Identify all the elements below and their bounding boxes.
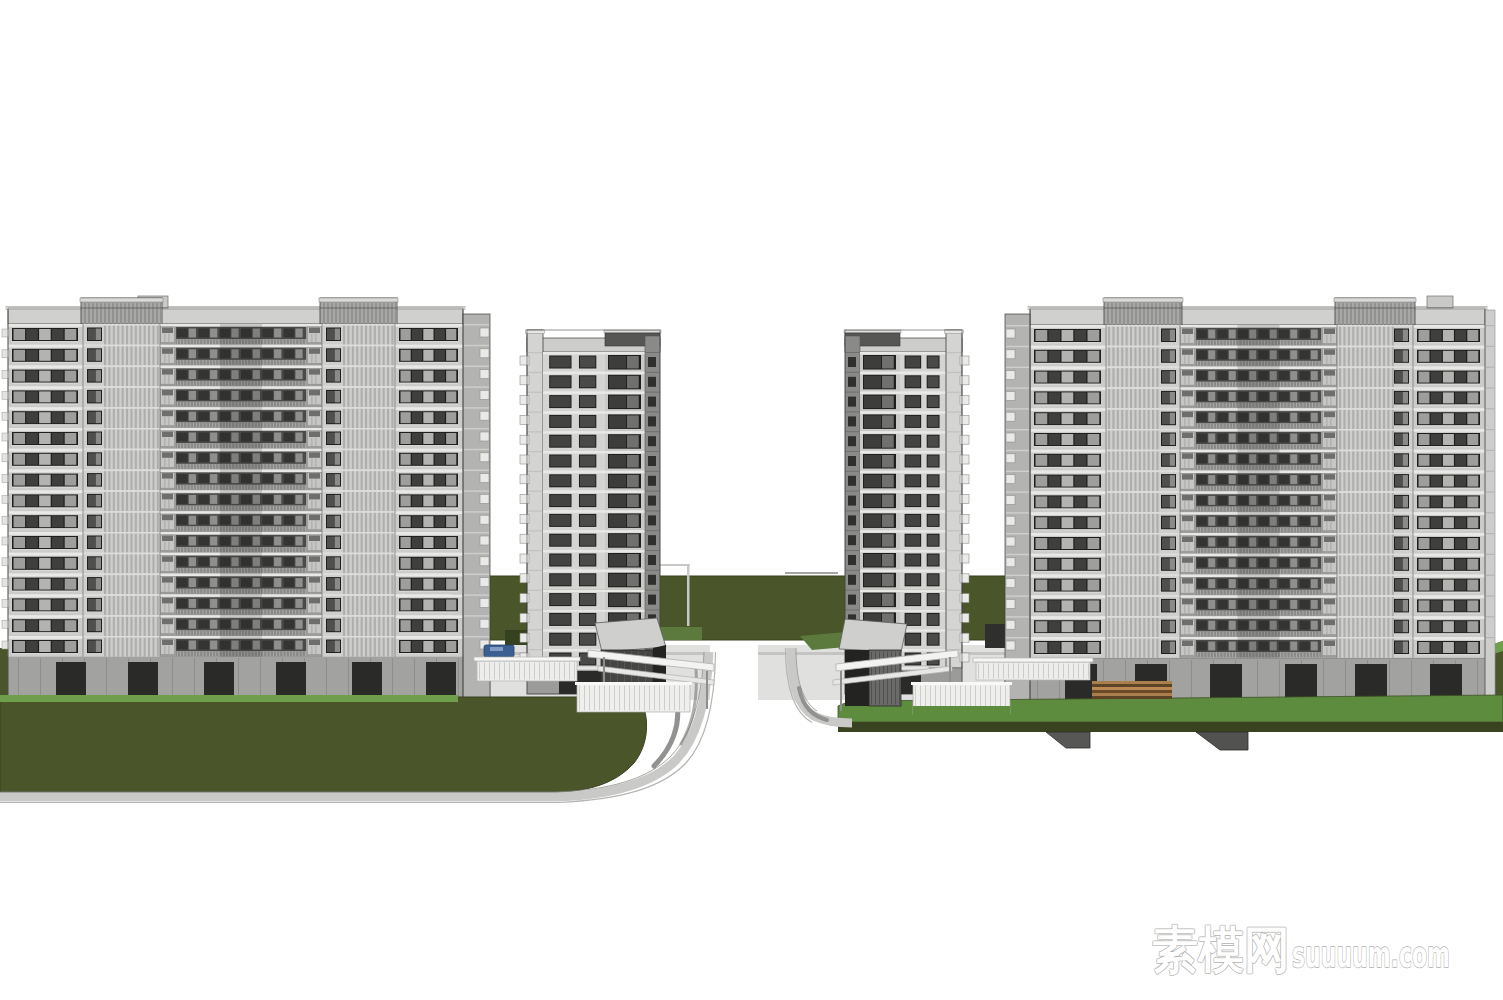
side-balcony-tab	[520, 514, 529, 523]
side-balcony-tab	[520, 613, 529, 622]
deck-stripe-3	[1092, 687, 1172, 690]
side-balcony-tab	[480, 349, 489, 358]
gate-fence-cap	[911, 682, 1012, 685]
side-balcony-tab	[480, 578, 489, 587]
fence-hedge	[913, 706, 1010, 715]
side-balcony-tab	[960, 435, 969, 444]
side-balcony-tab	[1006, 475, 1015, 484]
side-balcony-tab	[960, 356, 969, 365]
roof-box	[1427, 296, 1453, 308]
side-balcony-tab	[1006, 579, 1015, 588]
side-balcony-tab	[520, 594, 529, 603]
side-balcony-tab	[960, 475, 969, 484]
side-balcony-tab	[480, 390, 489, 399]
side-balcony-tab	[1006, 454, 1015, 463]
gate-fence-cap	[575, 682, 692, 685]
watermark-zh: 素模网	[1152, 921, 1290, 979]
side-balcony-tab	[960, 415, 969, 424]
side-balcony-tab	[1006, 412, 1015, 421]
left-hedge-strip	[0, 695, 458, 702]
side-balcony-tab	[960, 554, 969, 563]
side-balcony-tab	[1006, 495, 1015, 504]
entry-wall-right-cap	[973, 658, 1093, 662]
side-balcony-tab	[1006, 537, 1015, 546]
side-balcony-tab	[960, 633, 969, 642]
entrance-opening	[426, 662, 456, 700]
deck-stripe-4	[1092, 690, 1172, 693]
goal-frame-post	[687, 564, 690, 626]
side-balcony-tab	[520, 475, 529, 484]
side-balcony-tab	[480, 474, 489, 483]
center-rail-line	[785, 572, 838, 574]
side-balcony-tab	[520, 455, 529, 464]
side-balcony-tab	[960, 495, 969, 504]
deck-stripe-5	[1092, 693, 1172, 696]
side-balcony-tab	[480, 619, 489, 628]
side-balcony-tab	[520, 534, 529, 543]
right-lawn-face	[838, 722, 1503, 732]
side-balcony-tab	[480, 557, 489, 566]
entry-wall-left-cap	[474, 657, 580, 661]
gate-cube-top	[839, 619, 907, 652]
entry-wall-left	[477, 661, 577, 681]
side-balcony-tab	[480, 328, 489, 337]
gate-post-2	[706, 671, 708, 709]
side-balcony-tab	[960, 594, 969, 603]
entrance-opening	[276, 662, 306, 700]
entrance-opening	[128, 662, 158, 700]
side-balcony-tab	[480, 432, 489, 441]
side-balcony-tab	[1006, 558, 1015, 567]
pylon	[527, 330, 543, 668]
left-apartment-slab	[2, 296, 490, 700]
side-balcony-tab	[960, 514, 969, 523]
deck-stripe-6	[1092, 696, 1172, 699]
side-balcony-tab	[1006, 329, 1015, 338]
side-balcony-tab	[1006, 391, 1015, 400]
side-balcony-tab	[480, 598, 489, 607]
side-balcony-tab	[960, 574, 969, 583]
side-balcony-tab	[1006, 620, 1015, 629]
deck-stripe-1	[1092, 681, 1172, 684]
side-balcony-tab	[520, 415, 529, 424]
left-front-lawn	[0, 697, 647, 792]
entrance-opening	[352, 662, 382, 700]
right-apartment-slab	[1005, 296, 1495, 703]
side-balcony-tab	[960, 396, 969, 405]
entrance-opening	[204, 662, 234, 700]
gate-cube-top	[595, 618, 666, 652]
watermark-en: suuuum.com	[1292, 934, 1450, 975]
side-balcony-tab	[1006, 641, 1015, 650]
side-balcony-tab	[1006, 433, 1015, 442]
gate-post-1	[840, 671, 842, 711]
architectural-render: 素模网 suuuum.com	[0, 0, 1503, 1000]
side-balcony-tab	[520, 376, 529, 385]
side-balcony-tab	[480, 494, 489, 503]
side-balcony-tab	[480, 370, 489, 379]
side-balcony-tab	[1006, 371, 1015, 380]
side-balcony-tab	[520, 435, 529, 444]
side-balcony-tab	[1006, 516, 1015, 525]
side-balcony-tab	[960, 376, 969, 385]
side-balcony-tab	[520, 574, 529, 583]
side-balcony-tab	[520, 495, 529, 504]
side-balcony-tab	[520, 554, 529, 563]
side-balcony-tab	[480, 411, 489, 420]
side-balcony-tab	[520, 356, 529, 365]
side-balcony-tab	[520, 633, 529, 642]
entrance-opening	[56, 662, 86, 700]
side-balcony-tab	[960, 613, 969, 622]
deck-stripe-2	[1092, 684, 1172, 687]
side-face	[1485, 310, 1495, 701]
side-balcony-tab	[520, 396, 529, 405]
pylon	[946, 330, 962, 668]
side-balcony-tab	[480, 536, 489, 545]
side-balcony-tab	[1006, 599, 1015, 608]
side-balcony-tab	[480, 453, 489, 462]
side-balcony-tab	[960, 455, 969, 464]
side-balcony-tab	[960, 534, 969, 543]
side-balcony-tab	[480, 515, 489, 524]
gate-fence	[577, 684, 690, 712]
parked-car-window	[490, 647, 503, 651]
side-balcony-tab	[960, 653, 969, 662]
side-balcony-tab	[1006, 350, 1015, 359]
